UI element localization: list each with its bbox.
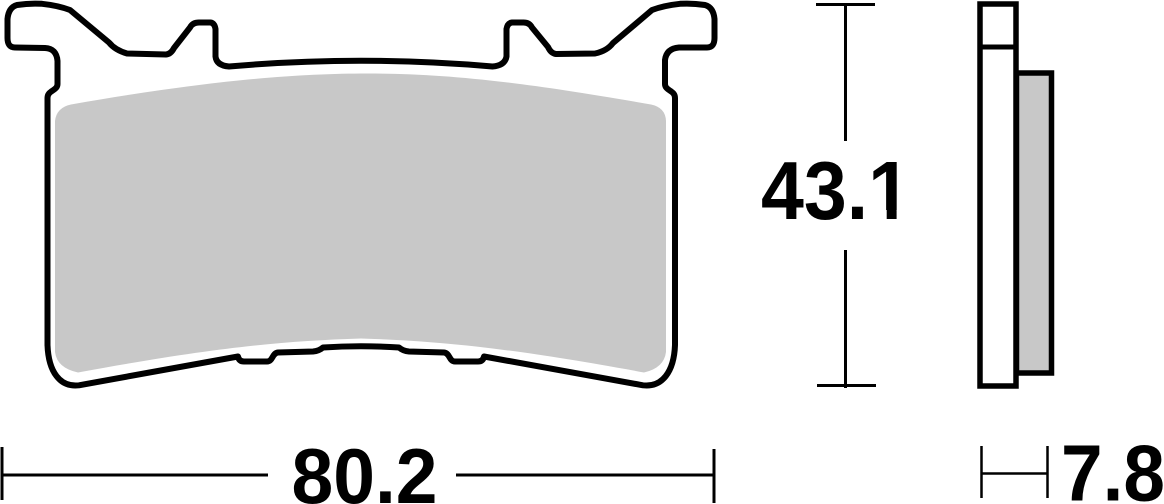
svg-text:43.1: 43.1	[761, 144, 911, 237]
svg-text:80.2: 80.2	[292, 432, 438, 504]
svg-text:7.8: 7.8	[1061, 429, 1164, 504]
